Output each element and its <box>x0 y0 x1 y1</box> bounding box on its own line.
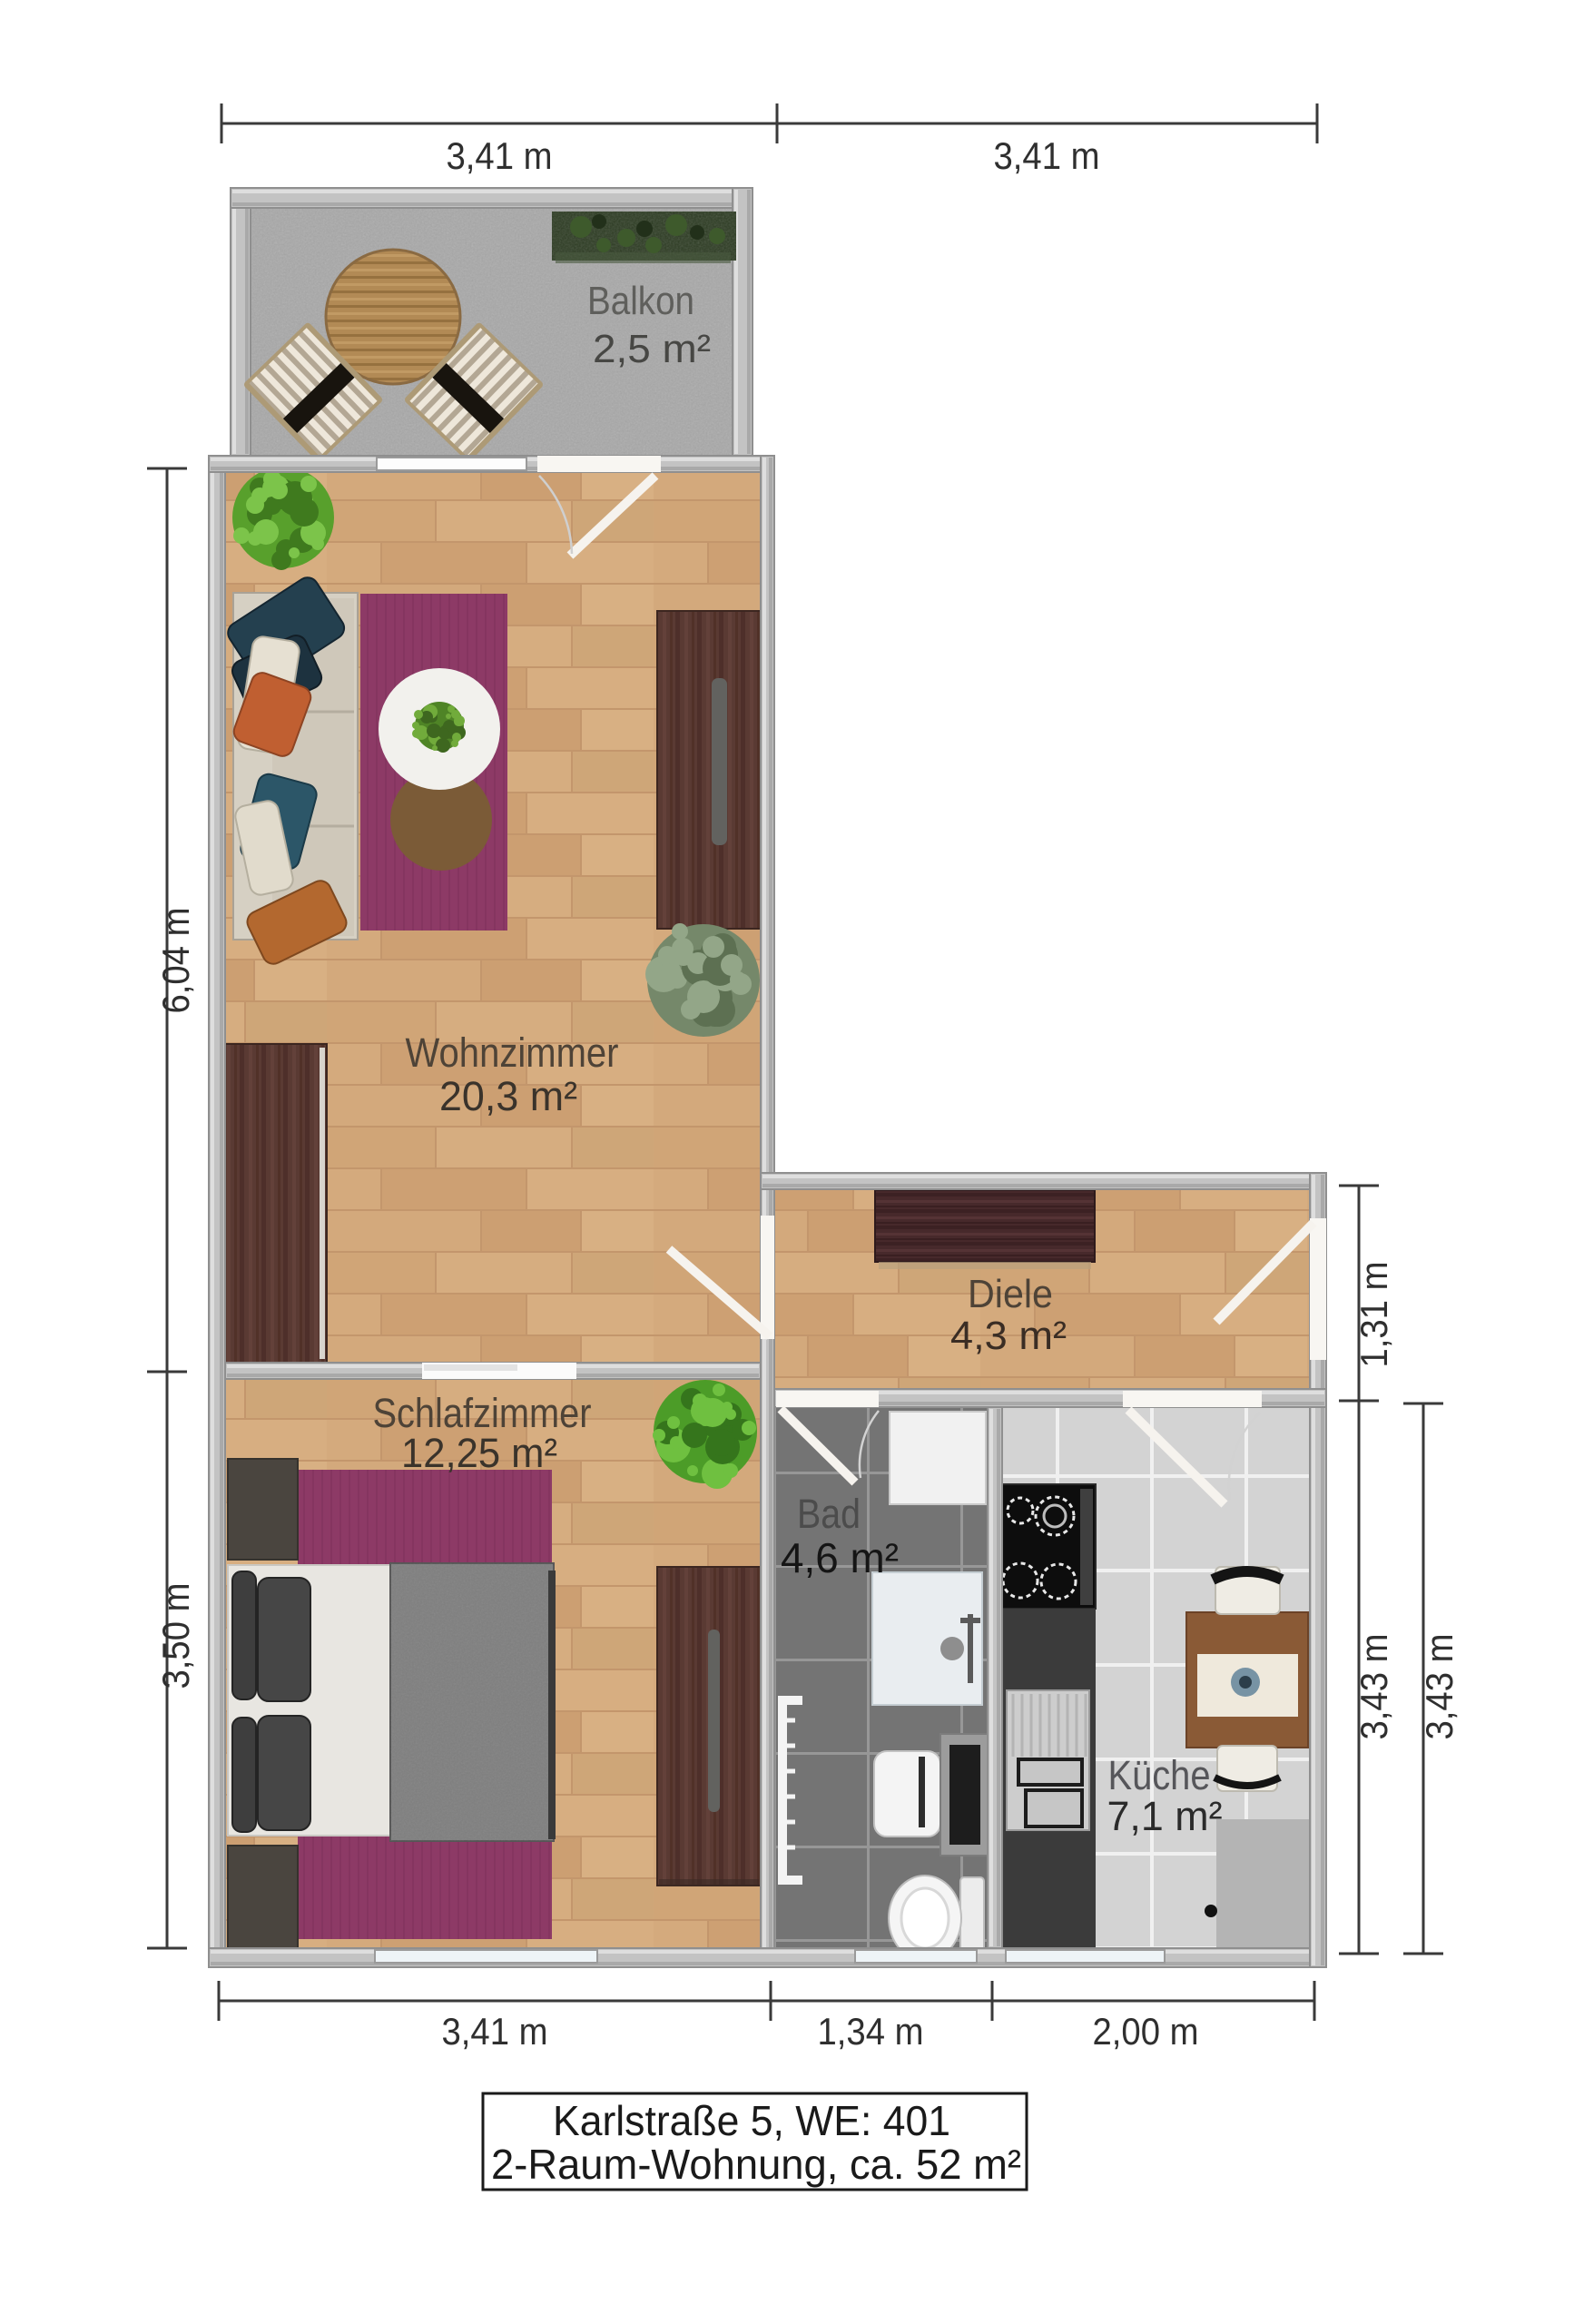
svg-text:Balkon: Balkon <box>587 279 694 323</box>
svg-text:3,43 m: 3,43 m <box>1418 1634 1461 1740</box>
svg-text:Diele: Diele <box>968 1272 1053 1316</box>
svg-text:Karlstraße 5, WE: 401: Karlstraße 5, WE: 401 <box>553 2097 950 2144</box>
svg-text:4,3 m²: 4,3 m² <box>950 1314 1067 1358</box>
svg-text:12,25 m²: 12,25 m² <box>401 1430 557 1476</box>
svg-text:2,5 m²: 2,5 m² <box>593 327 711 371</box>
svg-text:3,43 m: 3,43 m <box>1353 1634 1395 1740</box>
svg-text:3,41 m: 3,41 m <box>994 134 1100 177</box>
svg-text:7,1 m²: 7,1 m² <box>1107 1793 1223 1839</box>
svg-text:3,41 m: 3,41 m <box>447 134 553 177</box>
svg-text:Wohnzimmer: Wohnzimmer <box>406 1029 619 1076</box>
svg-text:6,04 m: 6,04 m <box>154 908 197 1014</box>
svg-text:1,34 m: 1,34 m <box>818 2010 924 2053</box>
svg-text:20,3 m²: 20,3 m² <box>439 1073 577 1119</box>
svg-text:2-Raum-Wohnung, ca. 52 m²: 2-Raum-Wohnung, ca. 52 m² <box>491 2141 1021 2188</box>
svg-text:Bad: Bad <box>797 1491 861 1537</box>
svg-text:2,00 m: 2,00 m <box>1093 2010 1199 2053</box>
svg-text:1,31 m: 1,31 m <box>1353 1262 1395 1368</box>
svg-text:4,6 m²: 4,6 m² <box>781 1534 899 1581</box>
svg-text:Küche: Küche <box>1108 1752 1211 1798</box>
svg-text:3,41 m: 3,41 m <box>442 2010 548 2053</box>
svg-text:3,50 m: 3,50 m <box>154 1583 197 1689</box>
